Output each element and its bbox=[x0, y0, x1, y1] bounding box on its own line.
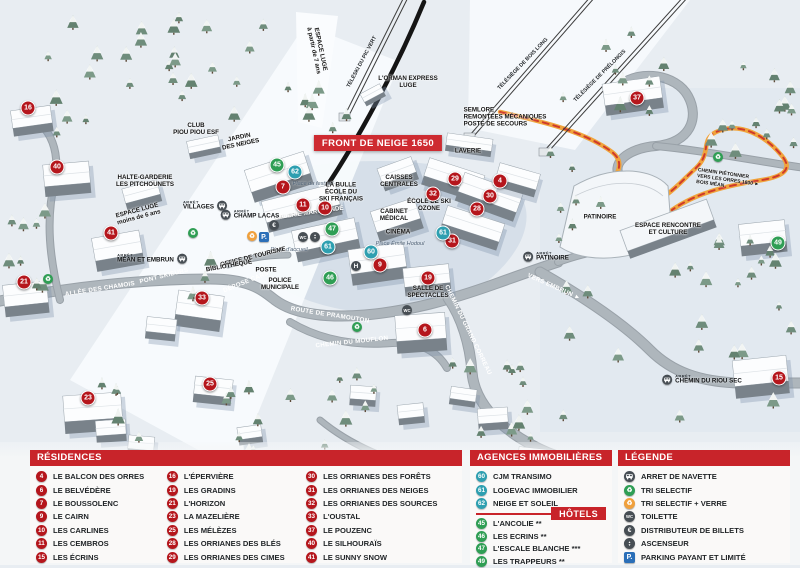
legende-item: ARRET DE NAVETTE bbox=[624, 470, 786, 483]
legend-item-label: LA MAZELIÈRE bbox=[184, 512, 240, 521]
legend-marker-number: 31 bbox=[306, 485, 317, 496]
legende-item-label: TOILETTE bbox=[641, 512, 678, 521]
legend-item-label: LE POUZENC bbox=[323, 526, 372, 535]
bus-stop-text: ARRÊTPATINOIRE bbox=[536, 252, 569, 263]
legende-item: ▲▼ASCENSEUR bbox=[624, 537, 786, 550]
legend-item: 21L'HORIZON bbox=[167, 497, 306, 510]
h-icon: H bbox=[351, 261, 361, 271]
residences-header: RÉSIDENCES bbox=[30, 450, 462, 466]
poi-label-police-municipale: POLICEMUNICIPALE bbox=[261, 277, 299, 291]
legend-marker-number: 16 bbox=[167, 471, 178, 482]
legend-marker-number: 4 bbox=[36, 471, 47, 482]
euro-icon: € bbox=[624, 525, 635, 536]
legend-item-label: LES ORRIANES DES FORÊTS bbox=[323, 472, 431, 481]
legend-marker-number: 61 bbox=[476, 485, 487, 496]
legend-item-label: LES ORRIANES DES SOURCES bbox=[323, 499, 437, 508]
poi-label-caisses-centrales: CAISSESCENTRALES bbox=[380, 174, 418, 188]
map-marker-9: 9 bbox=[373, 258, 388, 273]
front-de-neige-banner: FRONT DE NEIGE 1650 bbox=[314, 135, 442, 151]
poi-line: PATINOIRE bbox=[584, 213, 617, 220]
legend-marker-number: 40 bbox=[306, 538, 317, 549]
parking-icon: P. bbox=[624, 552, 635, 563]
recycle-orange-icon: ♻ bbox=[624, 498, 635, 509]
agencies-list: 60CJM TRANSIMO61LOGEVAC IMMOBILIER62NEIG… bbox=[470, 466, 612, 568]
poi-label-halte-garderie: HALTE-GARDERIELES PITCHOUNETS bbox=[116, 174, 174, 188]
recycle-green-icon: ♻ bbox=[188, 228, 198, 238]
legende-header: LÉGENDE bbox=[618, 450, 790, 466]
bus-stop-chemin-du-riou-sec: ARRÊTCHEMIN DU RIOU SEC bbox=[662, 375, 742, 386]
legend-item-label: LE CAIRN bbox=[53, 512, 89, 521]
legend-marker-number: 21 bbox=[167, 498, 178, 509]
legende-list: ARRET DE NAVETTE♻TRI SELECTIF♻TRI SELECT… bbox=[618, 466, 790, 564]
legend-marker-number: 7 bbox=[36, 498, 47, 509]
legend-item-label: LE BELVÉDÈRE bbox=[53, 486, 111, 495]
bus-stop-name: PATINOIRE bbox=[536, 256, 569, 263]
poi-line: CENTRALES bbox=[380, 181, 418, 188]
legend-marker-number: 62 bbox=[476, 498, 487, 509]
map-marker-7: 7 bbox=[276, 180, 291, 195]
bus-stop-patinoire: ARRÊTPATINOIRE bbox=[523, 252, 569, 263]
legend-item-label: LE BALCON DES ORRES bbox=[53, 472, 144, 481]
legend-marker-number: 46 bbox=[476, 531, 487, 542]
map-marker-62: 62 bbox=[288, 165, 303, 180]
map-marker-10: 10 bbox=[318, 201, 333, 216]
bus-icon bbox=[624, 471, 635, 482]
legend-item-label: L'HORIZON bbox=[184, 499, 225, 508]
legend-item-label: LOGEVAC IMMOBILIER bbox=[493, 486, 578, 495]
legend-marker-number: 15 bbox=[36, 552, 47, 563]
legende-item-label: PARKING PAYANT ET LIMITÉ bbox=[641, 553, 746, 562]
legend-item: 6LE BELVÉDÈRE bbox=[36, 483, 167, 496]
bus-icon bbox=[662, 375, 672, 385]
legend-item-label: LES CARLINES bbox=[53, 526, 109, 535]
legend-item: 47L'ESCALE BLANCHE *** bbox=[476, 542, 608, 555]
hotels-divider: HÔTELS bbox=[476, 513, 606, 515]
legend-marker-number: 37 bbox=[306, 525, 317, 536]
legende-item-label: DISTRIBUTEUR DE BILLETS bbox=[641, 526, 744, 535]
legend-marker-number: 49 bbox=[476, 556, 487, 567]
bus-stop-name: CHEMIN DU RIOU SEC bbox=[675, 379, 742, 386]
legend-item: 10LES CARLINES bbox=[36, 524, 167, 537]
residences-list: 4LE BALCON DES ORRES6LE BELVÉDÈRE7LE BOU… bbox=[30, 466, 462, 564]
legend-item: 61LOGEVAC IMMOBILIER bbox=[476, 483, 608, 496]
poi-line: PIOU PIOU ESF bbox=[173, 129, 219, 136]
poi-label-la-bulle-esf: LA BULLEÉCOLE DUSKI FRANÇAIS bbox=[319, 181, 363, 202]
elevator-icon: ▲▼ bbox=[310, 232, 320, 242]
legend-item-label: LES MÉLÈZES bbox=[184, 526, 237, 535]
poi-line: LES PITCHOUNETS bbox=[116, 181, 174, 188]
legend-marker-number: 41 bbox=[306, 552, 317, 563]
poi-line: MÉDICAL bbox=[380, 215, 408, 222]
map-marker-15: 15 bbox=[772, 371, 787, 386]
legend-item-label: L'ANCOLIE ** bbox=[493, 519, 542, 528]
recycle-orange-icon: ♻ bbox=[247, 231, 257, 241]
map-marker-28: 28 bbox=[470, 202, 485, 217]
legend-item: 11LES CEMBROS bbox=[36, 537, 167, 550]
legende-item-label: TRI SELECTIF bbox=[641, 486, 692, 495]
bus-icon bbox=[177, 254, 187, 264]
legend-item: 9LE CAIRN bbox=[36, 510, 167, 523]
legend-item-label: L'ESCALE BLANCHE *** bbox=[493, 544, 580, 553]
legend-marker-number: 6 bbox=[36, 485, 47, 496]
map-marker-21: 21 bbox=[17, 275, 32, 290]
map-marker-61: 61 bbox=[436, 226, 451, 241]
legend-marker-number: 23 bbox=[167, 511, 178, 522]
legend-item-label: LE SUNNY SNOW bbox=[323, 553, 387, 562]
legend-item: 7LE BOUSSOLENC bbox=[36, 497, 167, 510]
poi-line: MUNICIPALE bbox=[261, 284, 299, 291]
legend-marker-number: 25 bbox=[167, 525, 178, 536]
legend-item-label: CJM TRANSIMO bbox=[493, 472, 552, 481]
elevator-arrows: ▲▼ bbox=[313, 234, 316, 240]
map-marker-47: 47 bbox=[325, 222, 340, 237]
residences-column-3: 30LES ORRIANES DES FORÊTS31LES ORRIANES … bbox=[306, 470, 458, 564]
legend-panel-legende: LÉGENDE ARRET DE NAVETTE♻TRI SELECTIF♻TR… bbox=[618, 450, 790, 563]
poi-line: LAVERIE bbox=[455, 147, 481, 154]
map-marker-41: 41 bbox=[104, 226, 119, 241]
map-marker-33: 33 bbox=[195, 291, 210, 306]
bus-stop-text: ARRÊTVILLAGES bbox=[183, 201, 214, 212]
agencies-header: AGENCES IMMOBILIÈRES bbox=[470, 450, 612, 466]
legend-item-label: L'ÉPERVIÈRE bbox=[184, 472, 234, 481]
bus-stop-name: MÉAN ET EMBRUN bbox=[117, 258, 174, 265]
map-marker-60: 60 bbox=[364, 245, 379, 260]
legend-marker-number: 28 bbox=[167, 538, 178, 549]
map-marker-4: 4 bbox=[493, 174, 508, 189]
map-marker-29: 29 bbox=[448, 172, 463, 187]
residences-column-2: 16L'ÉPERVIÈRE19LES GRADINS21L'HORIZON23L… bbox=[167, 470, 306, 564]
legend-marker-number: 30 bbox=[306, 471, 317, 482]
residences-column-1: 4LE BALCON DES ORRES6LE BELVÉDÈRE7LE BOU… bbox=[36, 470, 167, 564]
hotels-header: HÔTELS bbox=[551, 507, 606, 520]
bus-stop-text: ARRÊTCHEMIN DU RIOU SEC bbox=[675, 375, 742, 386]
poi-label-espace-rencontre: ESPACE RENCONTREET CULTURE bbox=[635, 222, 701, 236]
recycle-green-icon: ♻ bbox=[713, 152, 723, 162]
map-marker-25: 25 bbox=[203, 377, 218, 392]
poi-line: ET CULTURE bbox=[635, 229, 701, 236]
recycle-green-icon: ♻ bbox=[43, 274, 53, 284]
legend-item: 32LES ORRIANES DES SOURCES bbox=[306, 497, 458, 510]
legend-item: 30LES ORRIANES DES FORÊTS bbox=[306, 470, 458, 483]
legend-marker-number: 29 bbox=[167, 552, 178, 563]
legend-item-label: LES ÉCRINS bbox=[53, 553, 99, 562]
map-marker-40: 40 bbox=[50, 160, 65, 175]
ski-resort-map: CLUBPIOU PIOU ESFJARDINDES NEIGESHALTE-G… bbox=[0, 0, 800, 565]
poi-label-club-piou-piou: CLUBPIOU PIOU ESF bbox=[173, 122, 219, 136]
poi-label-patinoire-batiment: PATINOIRE bbox=[584, 213, 617, 220]
poi-line: POSTE bbox=[256, 266, 277, 273]
map-marker-30: 30 bbox=[483, 189, 498, 204]
legende-item: €DISTRIBUTEUR DE BILLETS bbox=[624, 524, 786, 537]
recycle-green-icon: ♻ bbox=[352, 322, 362, 332]
recycle-green-icon: ♻ bbox=[624, 485, 635, 496]
legend-item: 49LES TRAPPEURS ** bbox=[476, 555, 608, 568]
legend-item: 37LE POUZENC bbox=[306, 524, 458, 537]
legend-item-label: LES ORRIANES DES NEIGES bbox=[323, 486, 429, 495]
legend-marker-number: 11 bbox=[36, 538, 47, 549]
legend-item: 41LE SUNNY SNOW bbox=[306, 550, 458, 563]
map-marker-32: 32 bbox=[426, 187, 441, 202]
legend-item: 25LES MÉLÈZES bbox=[167, 524, 306, 537]
map-marker-45: 45 bbox=[270, 158, 285, 173]
poi-line: POSTE DE SECOURS bbox=[464, 121, 547, 128]
legende-item: WCTOILETTE bbox=[624, 510, 786, 523]
bus-stop-champ-lacas: ARRÊTCHAMP LACAS bbox=[221, 210, 280, 221]
map-marker-16: 16 bbox=[21, 101, 36, 116]
legend-item: 19LES GRADINS bbox=[167, 483, 306, 496]
legend-marker-number: 32 bbox=[306, 498, 317, 509]
elevator-arrows: ▲▼ bbox=[628, 541, 631, 547]
poi-line: SPECTACLES bbox=[407, 292, 448, 299]
legend-panel-residences: RÉSIDENCES 4LE BALCON DES ORRES6LE BELVÉ… bbox=[30, 450, 462, 563]
legend-marker-number: 33 bbox=[306, 511, 317, 522]
poi-label-salle-de-spectacles: SALLE DESPECTACLES bbox=[407, 285, 448, 299]
legend-item-label: LES GRADINS bbox=[184, 486, 236, 495]
legend-item: 29LES ORRIANES DES CIMES bbox=[167, 550, 306, 563]
legend-item: 23LA MAZELIÈRE bbox=[167, 510, 306, 523]
parking-icon: P. bbox=[259, 232, 269, 242]
map-marker-23: 23 bbox=[81, 391, 96, 406]
poi-label-cabinet-medical: CABINETMÉDICAL bbox=[380, 208, 408, 222]
legende-item: ♻TRI SELECTIF bbox=[624, 483, 786, 496]
bus-stop-name: VILLAGES bbox=[183, 205, 214, 212]
euro-icon: € bbox=[269, 220, 279, 230]
legend-marker-number: 60 bbox=[476, 471, 487, 482]
legend-marker-number: 9 bbox=[36, 511, 47, 522]
poi-line: LUGE bbox=[378, 82, 438, 89]
poi-label-poste: POSTE bbox=[256, 266, 277, 273]
poi-label-laverie: LAVERIE bbox=[455, 147, 481, 154]
legend-marker-number: 47 bbox=[476, 543, 487, 554]
legend-item-label: LE SILHOURAÏS bbox=[323, 539, 382, 548]
bus-stop-text: ARRÊTMÉAN ET EMBRUN bbox=[117, 254, 174, 265]
wc-icon: WC bbox=[402, 305, 412, 315]
front-de-neige-label: FRONT DE NEIGE 1650 bbox=[322, 138, 434, 149]
poi-label-semlore: SEMLOREREMONTÉES MÉCANIQUESPOSTE DE SECO… bbox=[464, 106, 547, 127]
map-marker-46: 46 bbox=[323, 271, 338, 286]
legend-item: 15LES ÉCRINS bbox=[36, 550, 167, 563]
legend-panel-agencies-hotels: AGENCES IMMOBILIÈRES 60CJM TRANSIMO61LOG… bbox=[470, 450, 612, 563]
bus-stop-m-an-et-embrun: ARRÊTMÉAN ET EMBRUN bbox=[117, 254, 187, 265]
legend-item: 16L'ÉPERVIÈRE bbox=[167, 470, 306, 483]
map-marker-6: 6 bbox=[418, 323, 433, 338]
poi-label-cinema: CINÉMA bbox=[386, 228, 410, 235]
legende-item-label: ASCENSEUR bbox=[641, 539, 689, 548]
legend-item: 46LES ECRINS ** bbox=[476, 530, 608, 543]
map-marker-11: 11 bbox=[296, 198, 311, 213]
elevator-icon: ▲▼ bbox=[624, 538, 635, 549]
poi-line: OZONE bbox=[407, 205, 451, 212]
legend-marker-number: 10 bbox=[36, 525, 47, 536]
map-marker-61: 61 bbox=[321, 240, 336, 255]
poi-label-orman-express: L'ORMAN EXPRESSLUGE bbox=[378, 75, 438, 89]
legend-item-label: LES CEMBROS bbox=[53, 539, 109, 548]
legend-item-label: LES ORRIANES DES BLÉS bbox=[184, 539, 281, 548]
map-marker-49: 49 bbox=[771, 236, 786, 251]
legend-marker-number: 19 bbox=[167, 485, 178, 496]
legend-item: 33L'OUSTAL bbox=[306, 510, 458, 523]
legend-item: 4LE BALCON DES ORRES bbox=[36, 470, 167, 483]
legende-item: P.PARKING PAYANT ET LIMITÉ bbox=[624, 550, 786, 563]
bus-icon bbox=[221, 210, 231, 220]
legend-item-label: LE BOUSSOLENC bbox=[53, 499, 118, 508]
legende-item: ♻TRI SELECTIF + VERRE bbox=[624, 497, 786, 510]
poi-line: CINÉMA bbox=[386, 228, 410, 235]
legende-item-label: ARRET DE NAVETTE bbox=[641, 472, 717, 481]
legende-item-label: TRI SELECTIF + VERRE bbox=[641, 499, 727, 508]
wc-icon: WC bbox=[624, 511, 635, 522]
legend-item-label: LES ECRINS ** bbox=[493, 532, 547, 541]
bus-stop-text: ARRÊTCHAMP LACAS bbox=[234, 210, 280, 221]
bus-icon bbox=[523, 252, 533, 262]
wc-icon: WC bbox=[298, 232, 308, 242]
legend-item: 28LES ORRIANES DES BLÉS bbox=[167, 537, 306, 550]
map-marker-19: 19 bbox=[421, 271, 436, 286]
legend-item-label: LES TRAPPEURS ** bbox=[493, 557, 565, 566]
legend-item-label: L'OUSTAL bbox=[323, 512, 360, 521]
legend-item: 40LE SILHOURAÏS bbox=[306, 537, 458, 550]
legend-item: 60CJM TRANSIMO bbox=[476, 470, 608, 483]
legend-item: 31LES ORRIANES DES NEIGES bbox=[306, 483, 458, 496]
legend-item-label: LES ORRIANES DES CIMES bbox=[184, 553, 285, 562]
map-marker-37: 37 bbox=[630, 91, 645, 106]
place-label: Place Émile Hodoul bbox=[376, 241, 425, 247]
legend-item-label: NEIGE ET SOLEIL bbox=[493, 499, 558, 508]
legend-marker-number: 45 bbox=[476, 518, 487, 529]
